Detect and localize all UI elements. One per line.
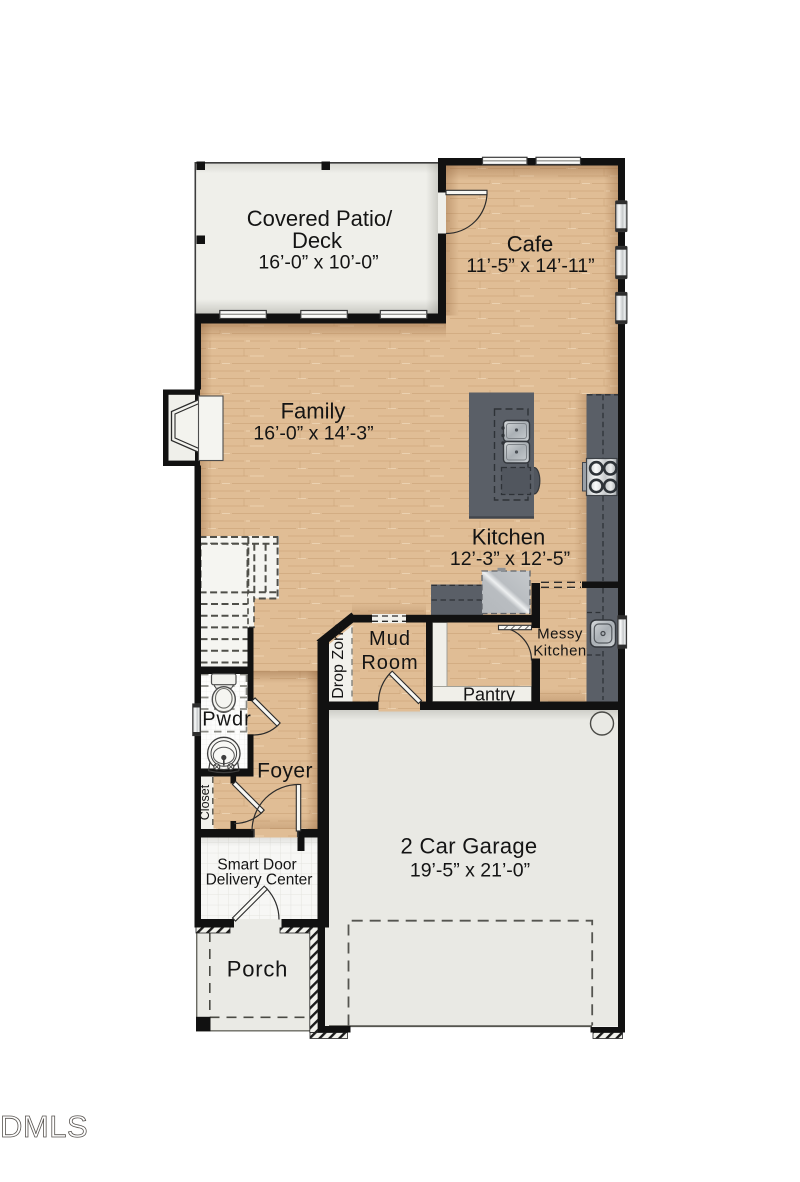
svg-text:16’-0” x 14’-3”: 16’-0” x 14’-3”: [253, 423, 373, 445]
svg-text:Room: Room: [361, 652, 418, 674]
svg-text:12’-3” x 12’-5”: 12’-3” x 12’-5”: [450, 548, 570, 570]
svg-text:Kitchen: Kitchen: [472, 525, 545, 550]
svg-text:Family: Family: [281, 399, 346, 424]
svg-text:Messy: Messy: [537, 626, 583, 643]
svg-text:Pantry: Pantry: [463, 685, 515, 705]
svg-text:Drop Zone: Drop Zone: [330, 623, 347, 699]
svg-text:Cafe: Cafe: [507, 232, 553, 257]
svg-text:Closet: Closet: [198, 784, 212, 820]
svg-text:2 Car Garage: 2 Car Garage: [401, 834, 538, 859]
svg-text:Deck: Deck: [292, 228, 343, 253]
svg-text:Porch: Porch: [227, 957, 288, 982]
svg-text:Foyer: Foyer: [257, 760, 313, 783]
svg-text:Delivery Center: Delivery Center: [206, 872, 313, 889]
svg-text:11’-5” x 14’-11”: 11’-5” x 14’-11”: [466, 255, 594, 277]
svg-text:Mud: Mud: [369, 628, 411, 650]
svg-text:DMLS: DMLS: [0, 1109, 88, 1144]
svg-text:Kitchen: Kitchen: [533, 643, 587, 660]
svg-text:16’-0” x 10’-0”: 16’-0” x 10’-0”: [258, 252, 378, 274]
svg-text:Pwdr: Pwdr: [202, 709, 252, 731]
svg-text:19’-5” x 21’-0”: 19’-5” x 21’-0”: [410, 860, 530, 882]
